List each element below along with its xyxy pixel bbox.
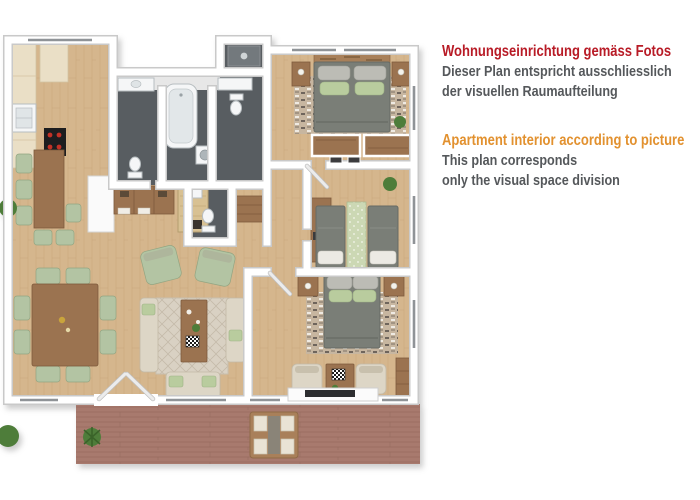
plant	[394, 116, 406, 128]
dining-table	[32, 284, 98, 366]
shower	[228, 46, 260, 66]
apartment	[0, 40, 420, 464]
bathtub	[165, 84, 197, 148]
double-bed	[324, 272, 380, 348]
terrace-deck	[76, 404, 420, 464]
living-coffee-table	[181, 300, 207, 362]
tv-console	[288, 388, 378, 401]
german-body-line2: der visuellen Raumaufteilung	[442, 82, 684, 102]
page: Wohnungseinrichtung gemäss Fotos Dieser …	[0, 0, 700, 500]
tv-screen	[305, 390, 355, 397]
outdoor-table-set	[250, 412, 298, 458]
bed-divider-screen	[347, 202, 366, 268]
twin-beds	[316, 202, 398, 268]
annotation-panel: Wohnungseinrichtung gemäss Fotos Dieser …	[442, 42, 684, 191]
hall-cabinet	[234, 196, 264, 222]
toilet-2	[230, 94, 243, 115]
kitchen-tall-cabinet	[40, 44, 68, 82]
english-body-line2: only the visual space division	[442, 171, 684, 191]
german-body-line1: Dieser Plan entspricht ausschliesslich	[442, 62, 684, 82]
english-heading: Apartment interior according to picture	[442, 131, 684, 151]
english-body-line1: This plan corresponds	[442, 151, 684, 171]
double-bed	[314, 62, 390, 132]
german-heading: Wohnungseinrichtung gemäss Fotos	[442, 42, 684, 62]
plant	[383, 177, 397, 191]
terrace-bush	[0, 425, 19, 447]
bathroom-vanity-2	[218, 78, 252, 90]
toilet	[128, 157, 142, 178]
